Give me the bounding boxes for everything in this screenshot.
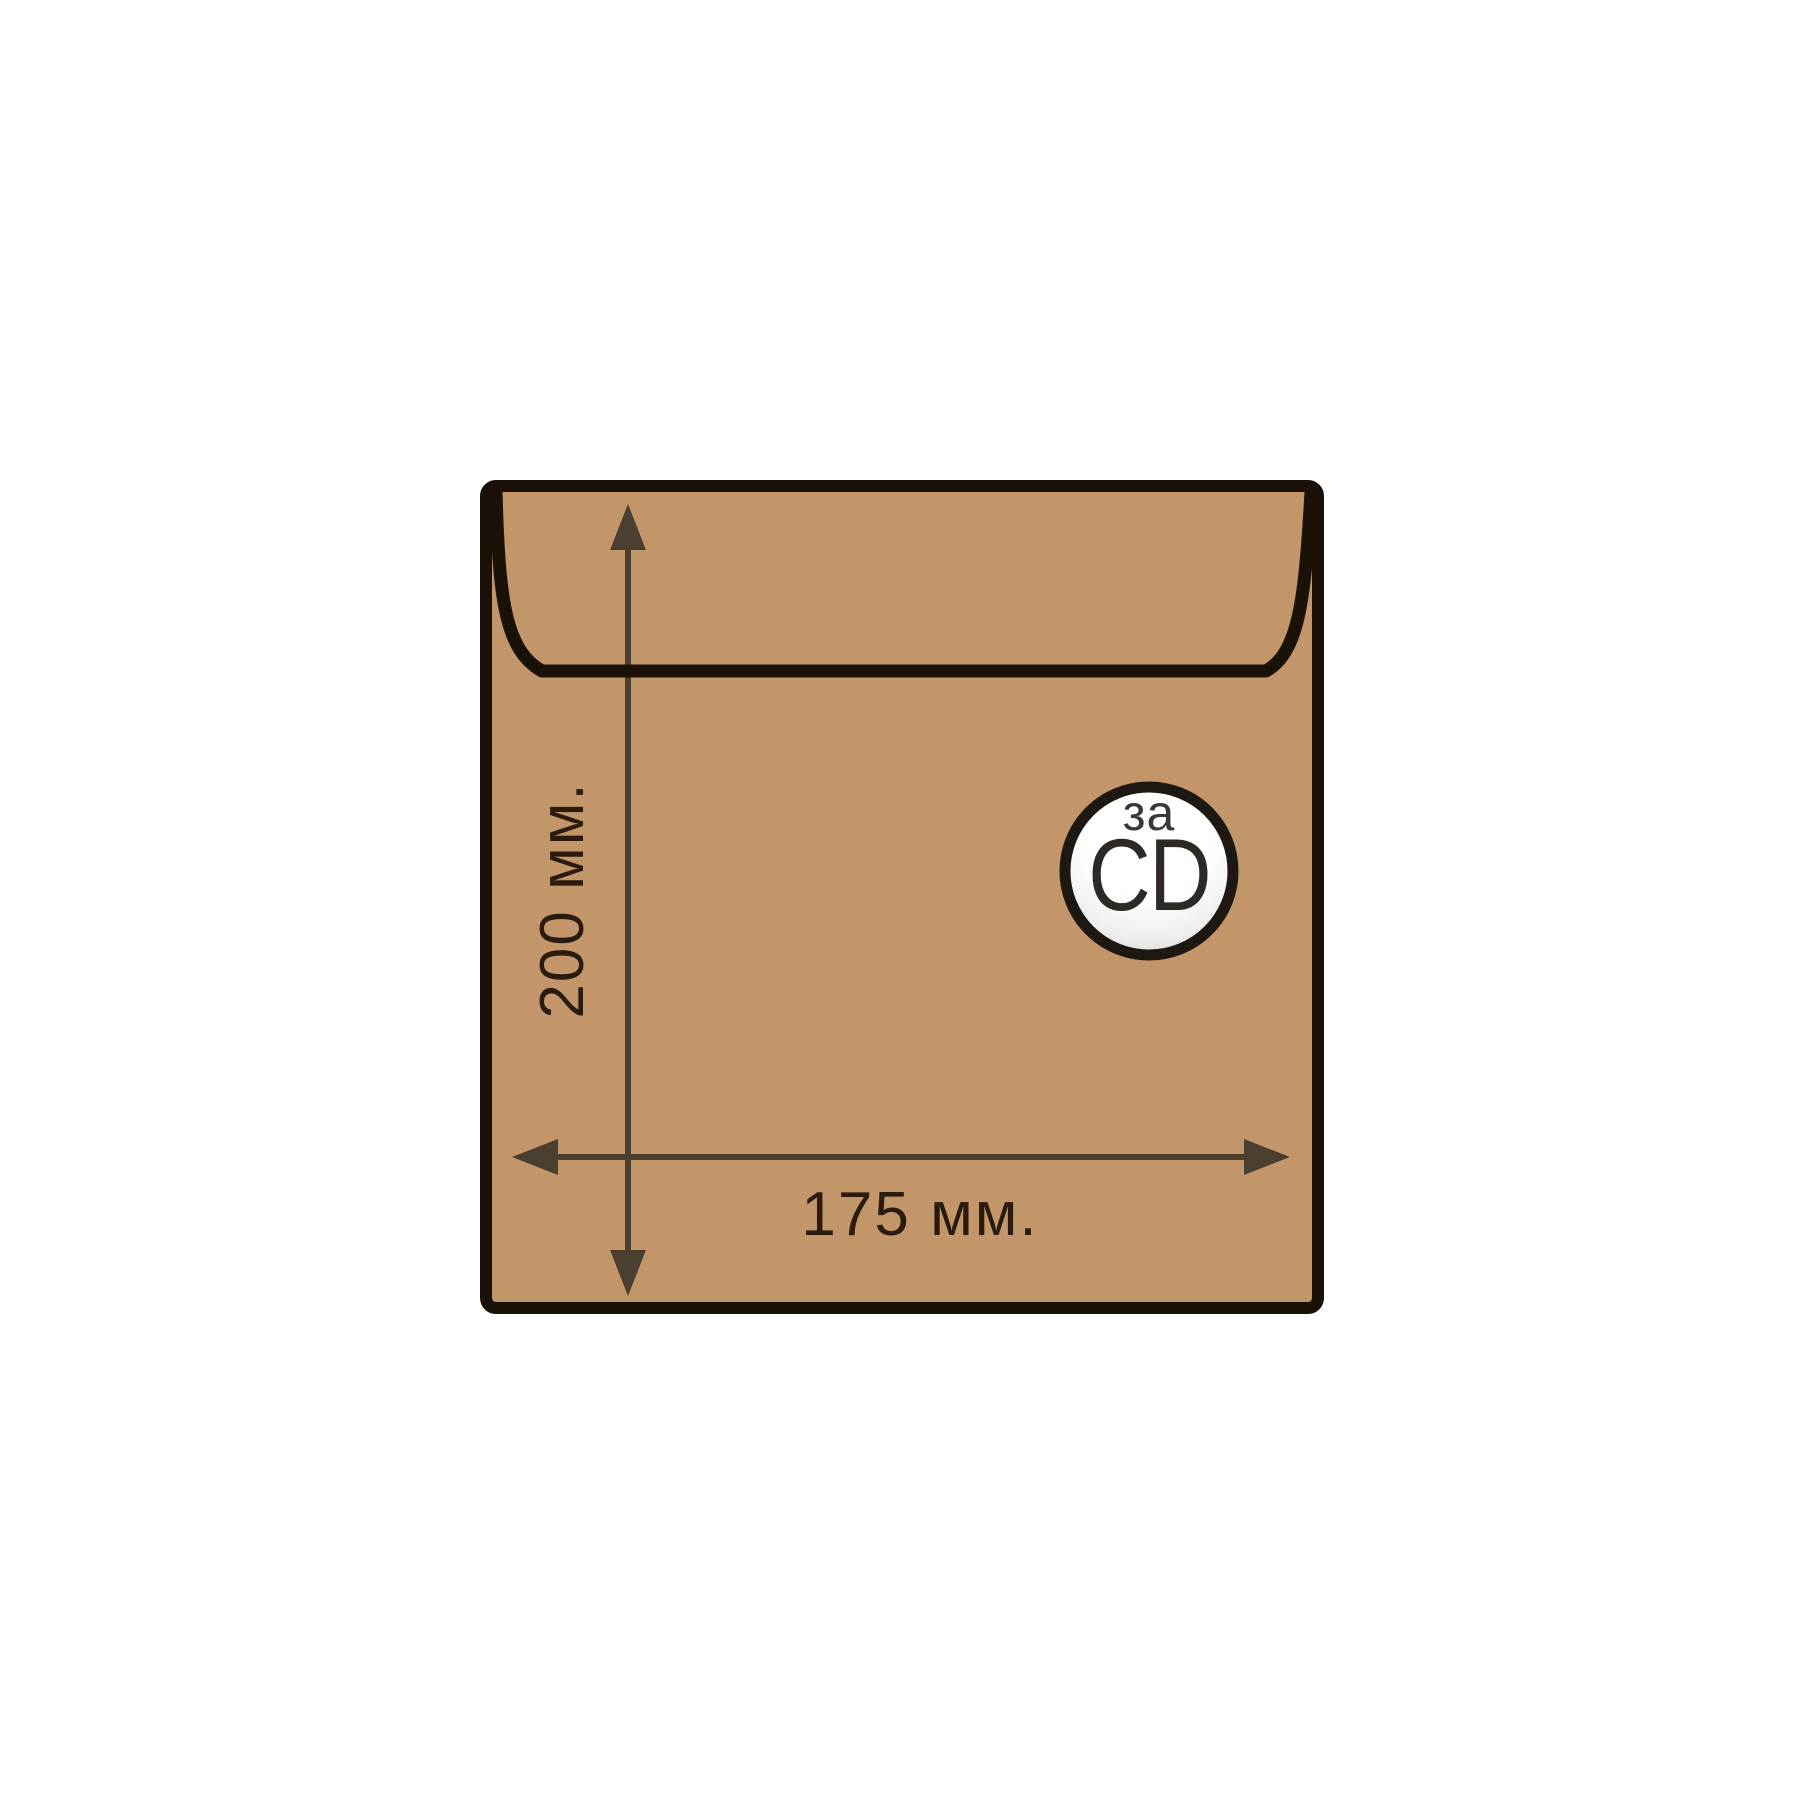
badge-main-text: CD <box>1030 822 1268 928</box>
width-dimension-label: 175 мм. <box>710 1180 1130 1250</box>
envelope-diagram-graphic <box>0 0 1800 1800</box>
height-dimension-label: 200 мм. <box>528 690 598 1110</box>
diagram-canvas: 200 мм. 175 мм. за CD <box>0 0 1800 1800</box>
